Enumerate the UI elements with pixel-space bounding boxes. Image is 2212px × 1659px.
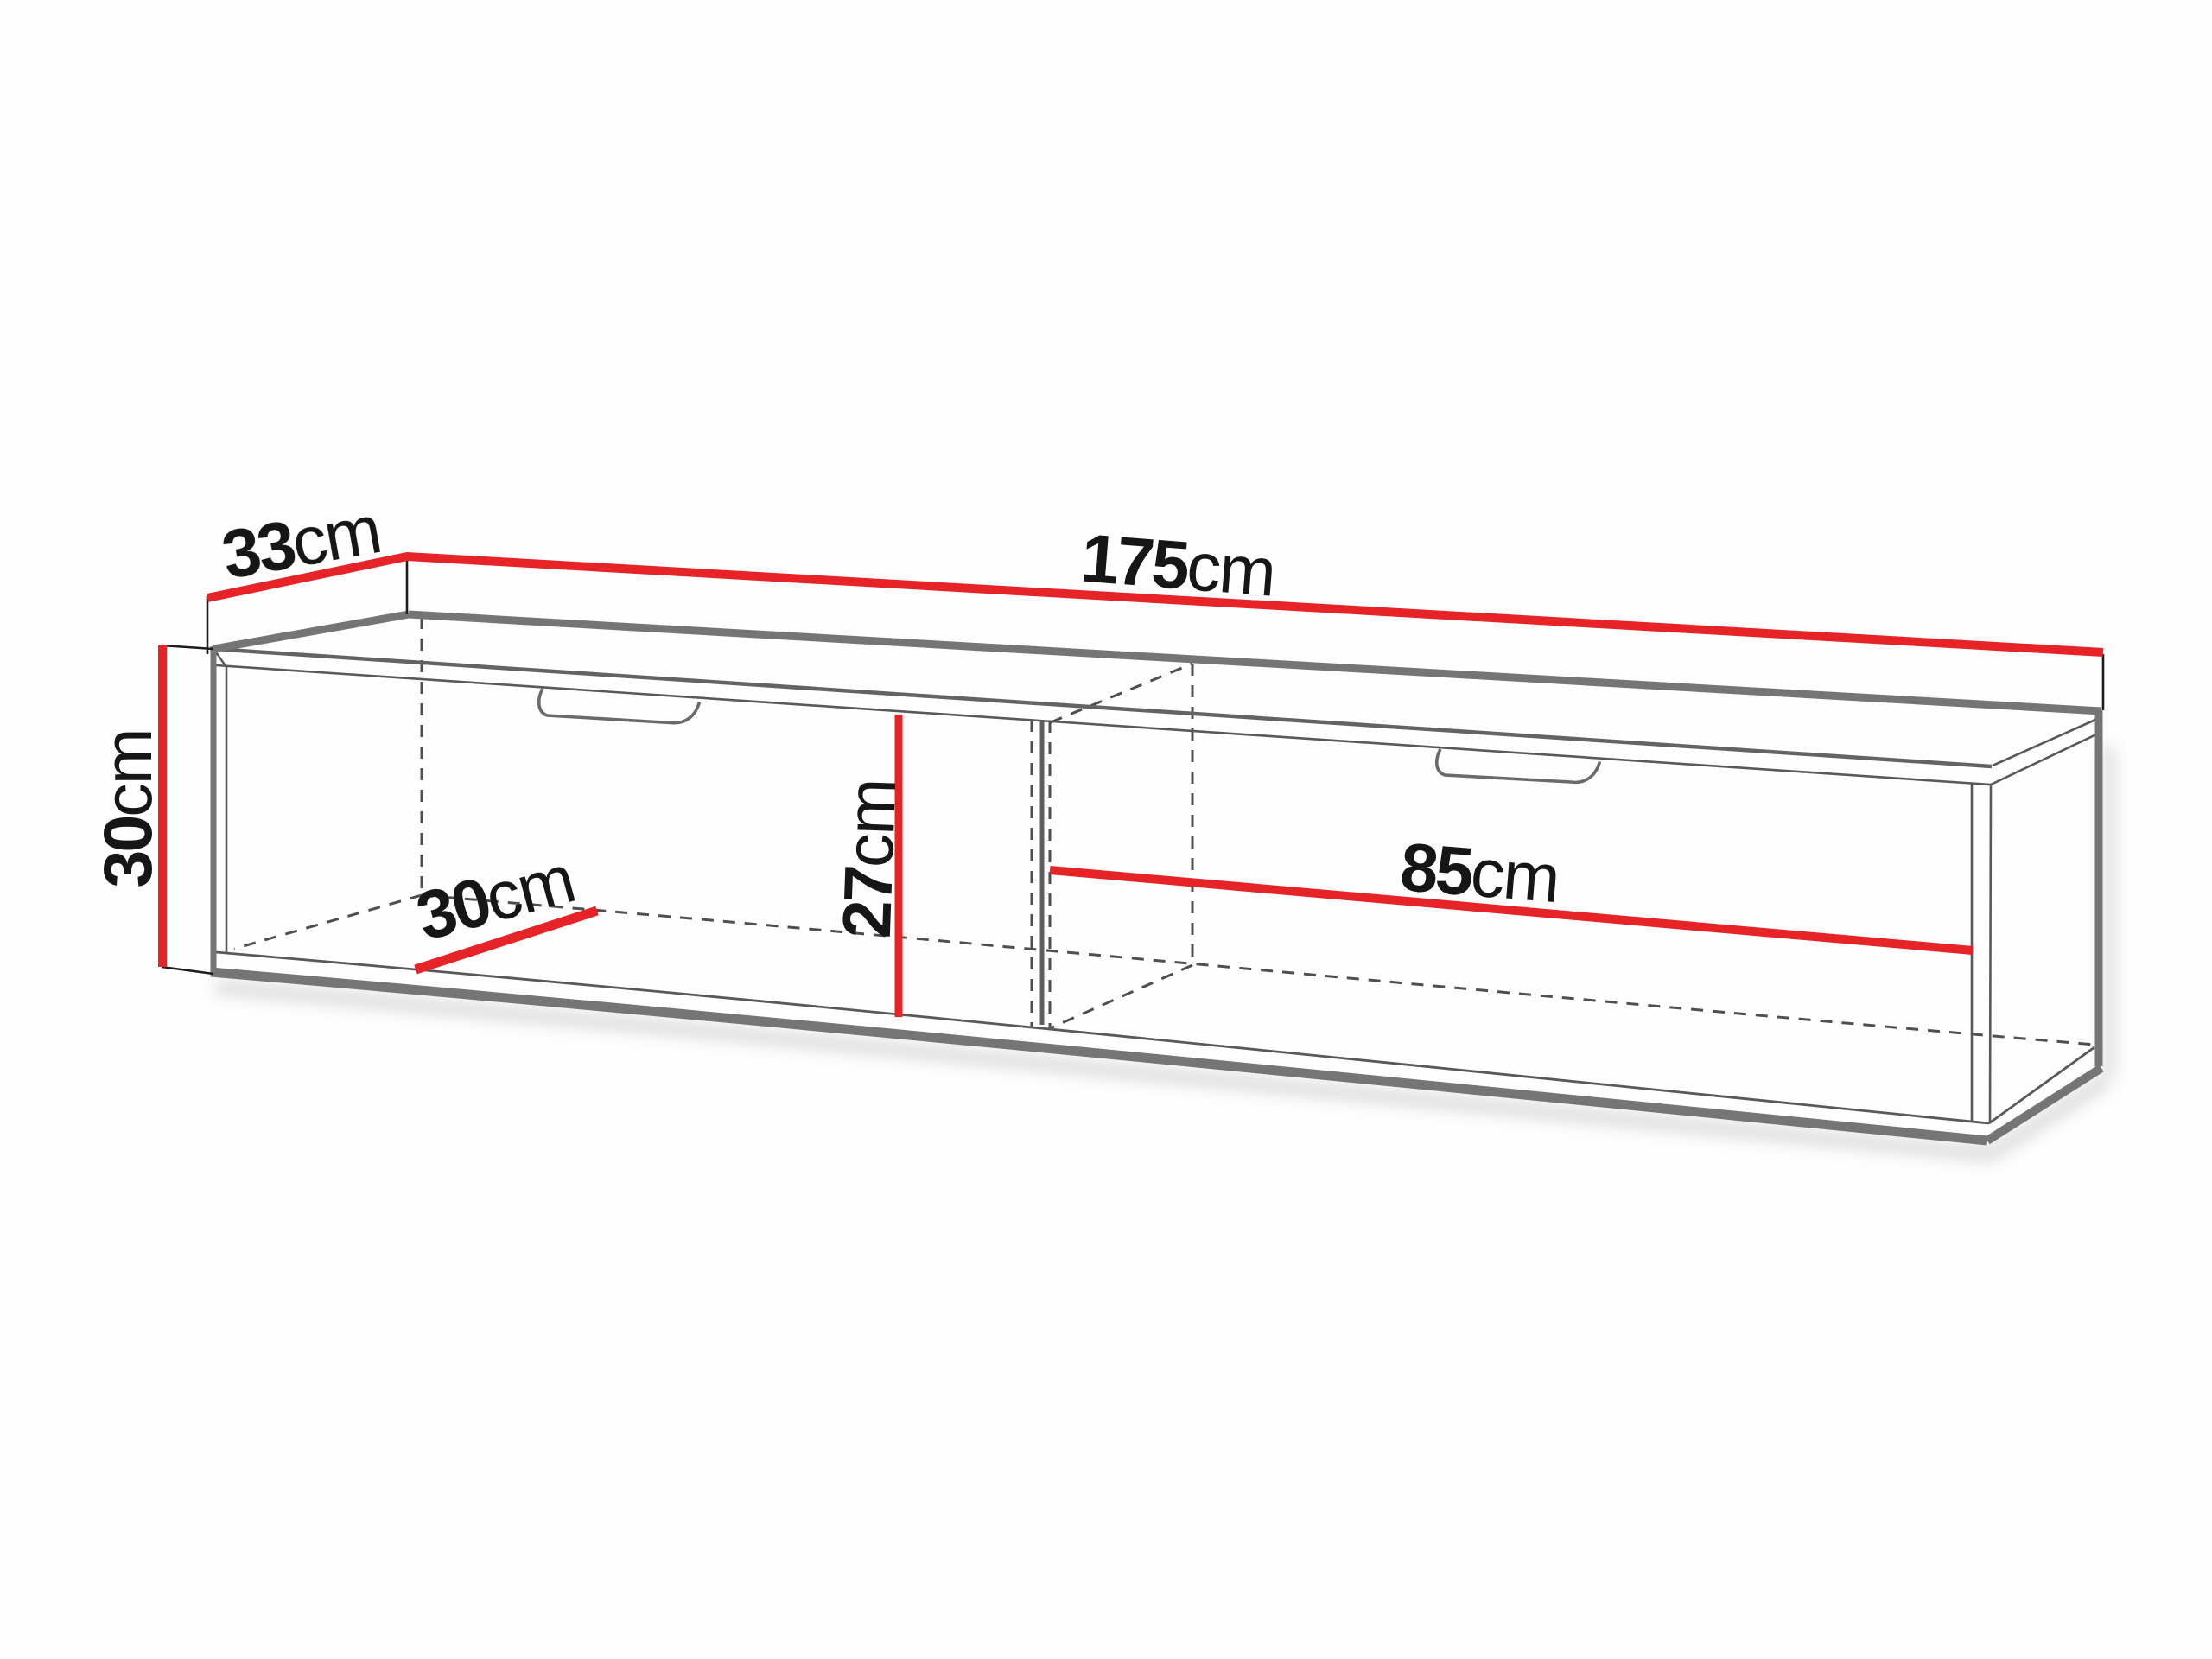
svg-text:27cm: 27cm <box>828 779 910 939</box>
svg-text:175cm: 175cm <box>1078 518 1277 610</box>
svg-text:85cm: 85cm <box>1397 828 1561 917</box>
svg-text:30cm: 30cm <box>89 729 166 887</box>
